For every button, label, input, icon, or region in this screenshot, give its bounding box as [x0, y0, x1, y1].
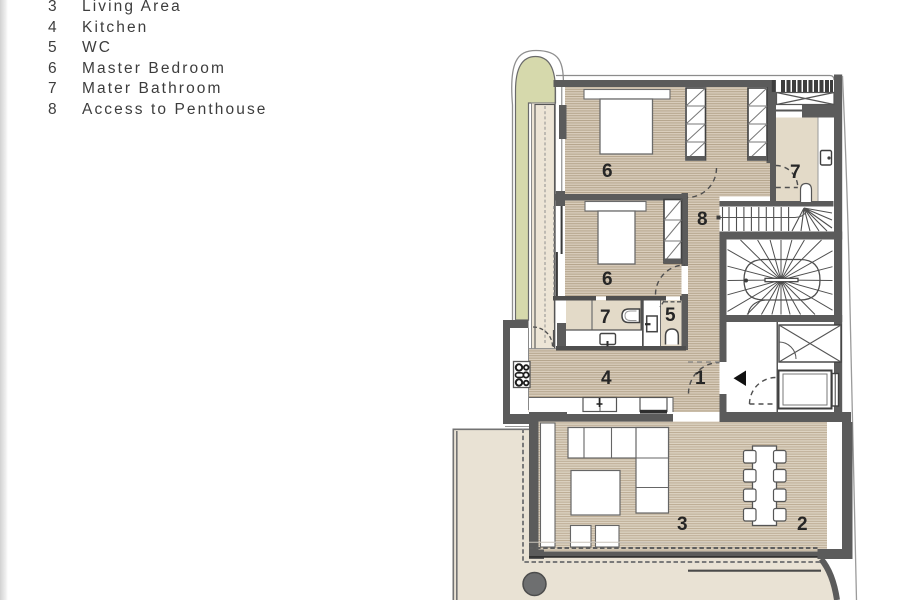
svg-text:2: 2: [797, 514, 808, 535]
svg-text:7: 7: [600, 307, 611, 328]
svg-text:5: 5: [665, 305, 676, 326]
svg-text:6: 6: [602, 161, 613, 182]
svg-text:4: 4: [601, 368, 612, 389]
svg-text:6: 6: [602, 269, 613, 290]
svg-text:7: 7: [790, 162, 801, 183]
svg-text:8: 8: [697, 209, 708, 230]
svg-text:3: 3: [677, 514, 688, 535]
svg-text:1: 1: [695, 368, 706, 389]
